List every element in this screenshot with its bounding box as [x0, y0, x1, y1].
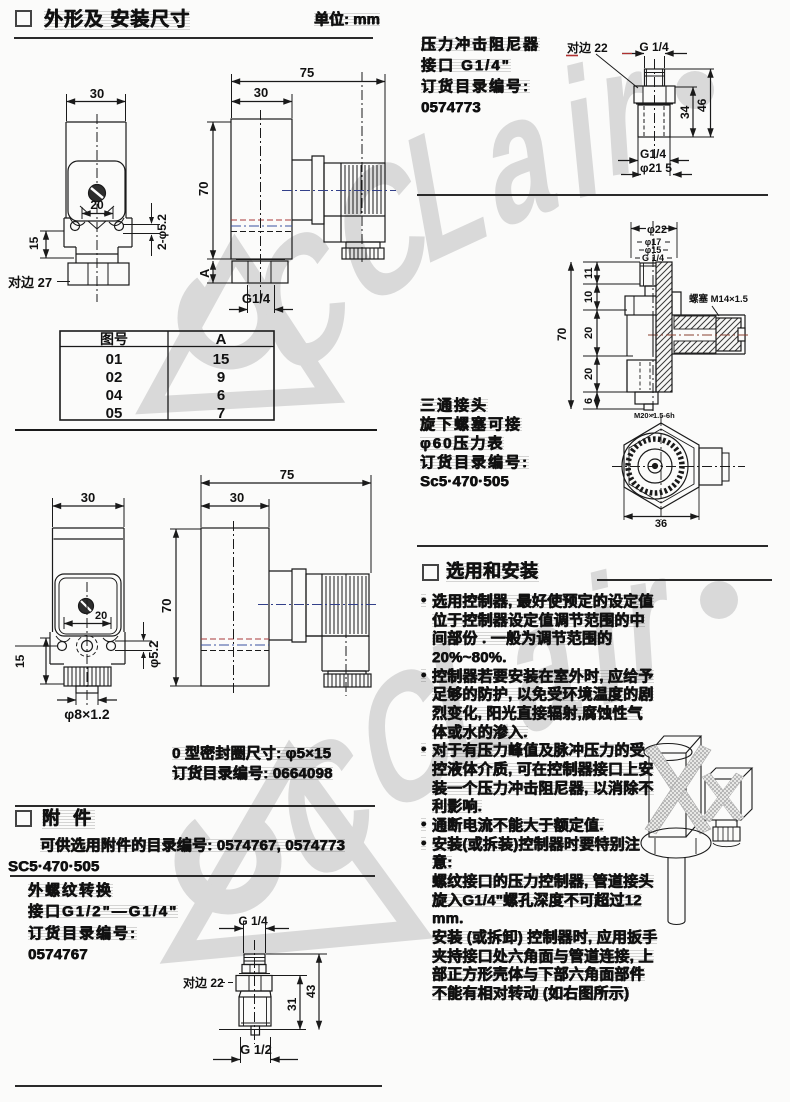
svg-text:φ5.2: φ5.2	[146, 641, 161, 668]
svg-text:15: 15	[213, 351, 230, 368]
svg-text:70: 70	[159, 599, 174, 613]
svg-text:G 1/4: G 1/4	[238, 914, 268, 928]
svg-text:G1/4: G1/4	[242, 291, 271, 306]
svg-text:φ21 5: φ21 5	[640, 161, 672, 175]
svg-text:20: 20	[95, 610, 107, 622]
svg-text:34: 34	[678, 105, 692, 119]
svg-text:7: 7	[217, 405, 225, 422]
svg-text:75: 75	[300, 65, 314, 80]
svg-text:A: A	[197, 268, 212, 278]
svg-text:A: A	[216, 331, 227, 348]
svg-text:φ8×1.2: φ8×1.2	[64, 706, 110, 722]
svg-text:对边 22: 对边 22	[567, 40, 608, 55]
svg-text:02: 02	[106, 369, 123, 386]
svg-text:G 1/4: G 1/4	[639, 40, 669, 54]
svg-text:70: 70	[555, 327, 569, 341]
svg-text:43: 43	[304, 984, 318, 998]
svg-text:11: 11	[583, 267, 595, 279]
svg-text:20: 20	[90, 198, 104, 212]
svg-text:20: 20	[583, 368, 595, 380]
svg-text:31: 31	[285, 997, 299, 1011]
svg-text:螺塞 M14×1.5: 螺塞 M14×1.5	[689, 293, 749, 305]
svg-text:30: 30	[81, 490, 95, 505]
svg-text:36: 36	[655, 518, 667, 530]
svg-text:G 1/2: G 1/2	[240, 1042, 272, 1057]
svg-text:01: 01	[106, 351, 123, 368]
svg-text:G1/4: G1/4	[640, 147, 666, 161]
svg-text:9: 9	[217, 369, 225, 386]
svg-text:6: 6	[583, 398, 595, 404]
svg-text:04: 04	[106, 387, 123, 404]
svg-text:75: 75	[280, 467, 294, 482]
svg-text:M20×1.5-6h: M20×1.5-6h	[634, 411, 675, 420]
svg-text:对边 27: 对边 27	[8, 275, 52, 290]
svg-text:6: 6	[217, 387, 225, 404]
svg-text:对边 22: 对边 22	[183, 975, 224, 990]
svg-text:20: 20	[583, 327, 595, 339]
svg-text:2-φ5.2: 2-φ5.2	[155, 214, 169, 250]
svg-text:30: 30	[230, 490, 244, 505]
svg-text:30: 30	[254, 85, 268, 100]
svg-text:15: 15	[27, 236, 41, 250]
svg-text:10: 10	[583, 291, 595, 303]
svg-text:φ22: φ22	[647, 224, 667, 236]
svg-text:05: 05	[106, 405, 123, 422]
svg-text:30: 30	[90, 86, 104, 101]
svg-text:15: 15	[13, 654, 27, 668]
svg-text:46: 46	[695, 98, 709, 112]
svg-text:图号: 图号	[100, 331, 128, 347]
svg-text:70: 70	[196, 182, 211, 196]
